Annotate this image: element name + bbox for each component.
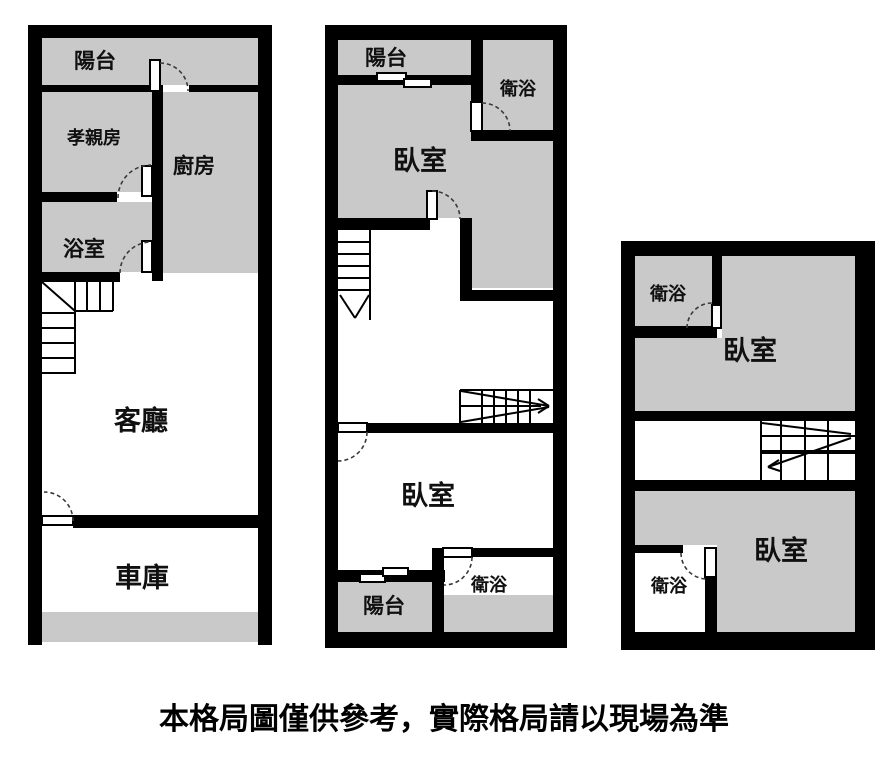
- room-label-garage: 車庫: [115, 563, 169, 593]
- floor-plan-3f: 衛浴 臥室 衛浴 臥室: [621, 241, 875, 650]
- disclaimer-caption: 本格局圖僅供參考，實際格局請以現場為準: [159, 702, 729, 736]
- floor-plan-2f: 陽台 衛浴 臥室 臥室 陽台 衛浴: [325, 25, 567, 648]
- floor-plan-page: 陽台 孝親房 廚房 浴室 客廳 車庫: [0, 0, 889, 761]
- room-label-balcony-2f-front: 陽台: [365, 46, 407, 70]
- stairs-down-icon-2f: [338, 230, 370, 320]
- room-label-kitchen: 廚房: [173, 154, 215, 178]
- room-label-bedroom-2f-rear: 臥室: [401, 480, 455, 511]
- room-label-bedroom-2f-front: 臥室: [393, 145, 447, 176]
- floor-plan-image: 陽台 孝親房 廚房 浴室 客廳 車庫: [0, 0, 889, 761]
- living-room-door-icon: [42, 492, 73, 525]
- room-label-bedroom-3f-front: 臥室: [723, 335, 777, 366]
- rooms-2f: [338, 40, 553, 632]
- garage-door-strip: [42, 612, 258, 642]
- stairs-icon-3f: [761, 421, 855, 480]
- room-label-bathroom-2f-front: 衛浴: [499, 78, 537, 99]
- room-label-bedroom-3f-rear: 臥室: [754, 535, 808, 566]
- room-label-bathroom-2f-rear: 衛浴: [470, 574, 508, 595]
- room-label-parents-room: 孝親房: [66, 127, 121, 148]
- room-label-bathroom-3f-rear: 衛浴: [650, 575, 688, 596]
- room-label-living-room: 客廳: [114, 405, 168, 436]
- room-label-bathroom-3f-front: 衛浴: [649, 283, 687, 304]
- bathroom-door-icon-3f-rear: [681, 548, 716, 579]
- room-label-bathroom-1f: 浴室: [63, 237, 105, 261]
- hall-door-icon: [338, 423, 367, 461]
- room-label-balcony-2f-rear: 陽台: [363, 594, 405, 618]
- stairs-up-icon-2f: [460, 390, 553, 423]
- room-label-balcony-1f: 陽台: [74, 49, 116, 73]
- stairs-icon-1f: [42, 281, 113, 374]
- bathroom-door-icon-rear: [443, 548, 472, 585]
- floor-plan-1f: 陽台 孝親房 廚房 浴室 客廳 車庫: [28, 25, 272, 645]
